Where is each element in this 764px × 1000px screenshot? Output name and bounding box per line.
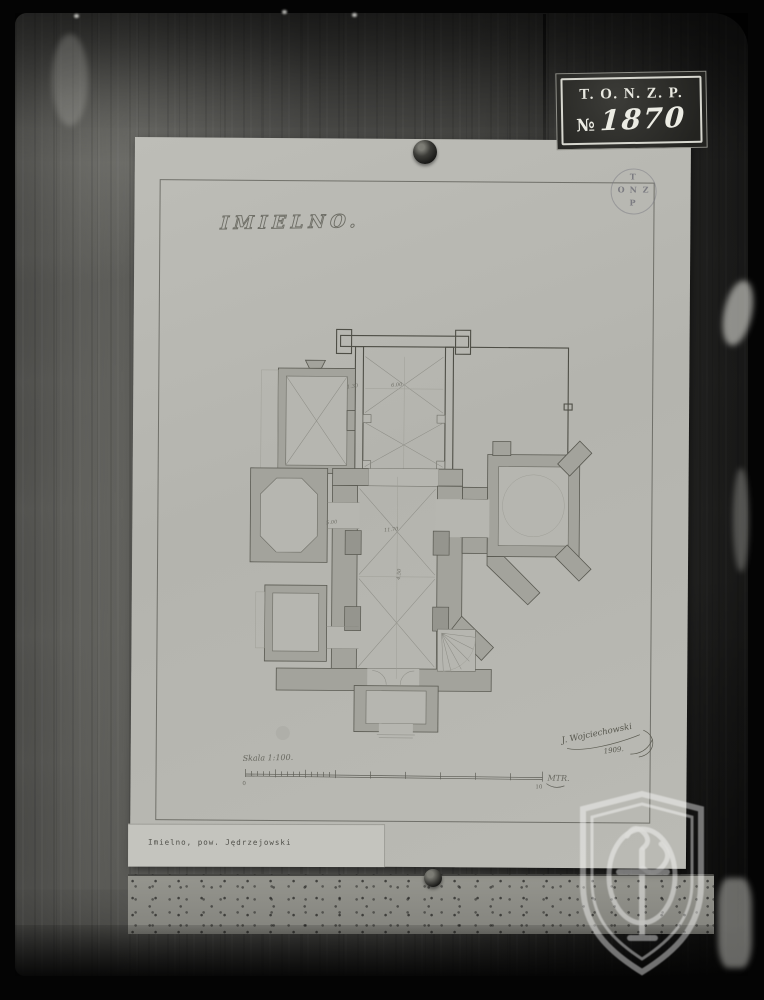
chancel: [336, 329, 573, 472]
dust-speck: [352, 13, 357, 17]
stamp-letter: N: [630, 184, 637, 194]
scale-label: Skala 1:100.: [243, 753, 294, 763]
scale-unit: MTR.: [546, 774, 569, 783]
push-pin-top-icon: [413, 140, 437, 164]
sacristy: [261, 360, 356, 474]
stamp-letter: P: [630, 197, 636, 207]
stamp-letter: T: [630, 171, 636, 181]
signature-name: J. Wojciechowski: [559, 722, 633, 747]
scale-bar: Skala 1:100. 0 10 MTR.: [230, 749, 570, 795]
sheet-title: IMIELNO.: [220, 211, 362, 234]
caption-text: Imielno, pow. Jędrzejowski: [148, 838, 291, 847]
inventory-number: 1870: [600, 100, 688, 137]
caption-slip: Imielno, pow. Jędrzejowski: [128, 824, 385, 867]
dim-note: 6.00: [391, 382, 403, 389]
scale-tick-end: 10: [535, 785, 543, 791]
shadow-bottom: [15, 925, 748, 976]
tonzp-stamp-icon: T O N Z P: [610, 168, 656, 214]
dim-note: 4.50: [396, 568, 403, 581]
archival-photograph: IMIELNO. T O N Z P: [0, 0, 764, 1000]
dust-speck: [74, 14, 79, 18]
plate-frame: T. O. N. Z. P. № 1870: [560, 76, 702, 145]
emulsion-damage: [52, 34, 88, 126]
dim-note: 1.30: [347, 383, 360, 391]
right-domed-chapel: [460, 440, 592, 605]
emulsion-damage: [733, 468, 749, 572]
numero-sign: №: [576, 115, 595, 136]
emulsion-damage: [718, 878, 752, 968]
signature-year: 1909.: [603, 745, 624, 756]
drawing-sheet: IMIELNO. T O N Z P: [130, 137, 691, 869]
dust-speck: [282, 10, 287, 14]
scale-tick-start: 0: [242, 781, 246, 787]
dim-note: 5.00: [326, 519, 338, 526]
push-pin-bottom-icon: [424, 869, 442, 887]
inventory-label-plate: T. O. N. Z. P. № 1870: [555, 71, 707, 151]
stamp-letter: Z: [643, 185, 649, 195]
board-seam: [543, 14, 546, 152]
stamp-letter: O: [618, 184, 625, 194]
smudge: [276, 726, 290, 740]
plate-number-line: № 1870: [576, 100, 688, 138]
church-floor-plan: 1.30 6.00 5.00 11.70 4.50: [241, 326, 614, 744]
